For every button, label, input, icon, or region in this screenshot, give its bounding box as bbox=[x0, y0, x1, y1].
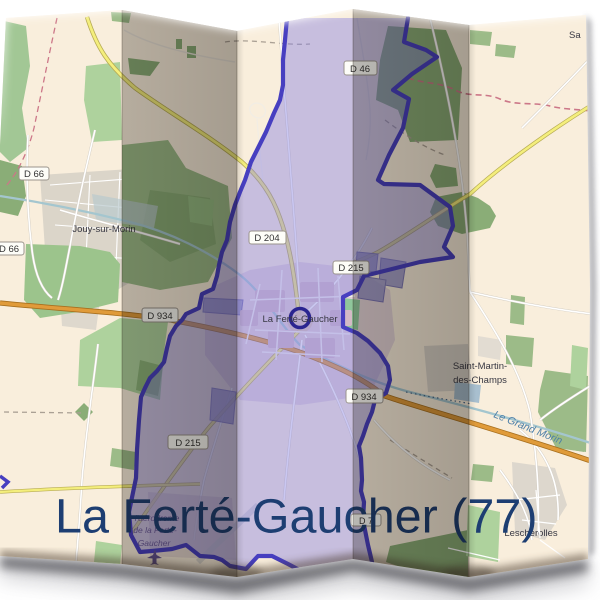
svg-text:D 66: D 66 bbox=[0, 244, 19, 255]
svg-text:D 66: D 66 bbox=[24, 169, 44, 180]
